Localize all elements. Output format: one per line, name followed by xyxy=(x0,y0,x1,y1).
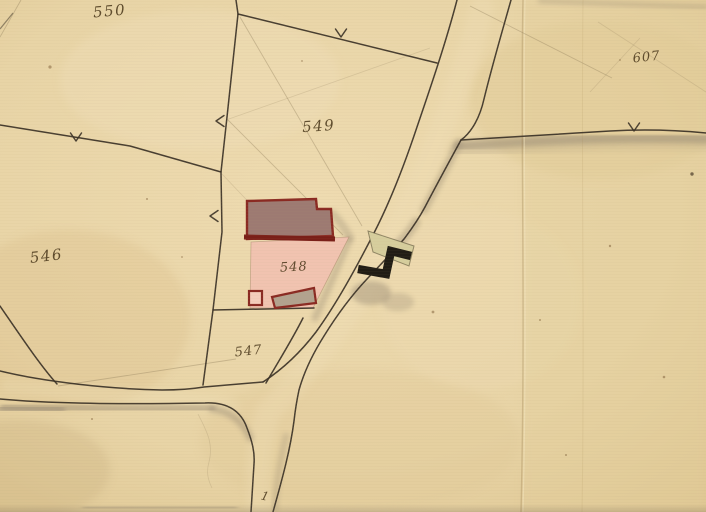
bottom-edge-shadow xyxy=(0,504,706,512)
map-canvas: 550 549 546 548 547 607 1 xyxy=(0,0,706,512)
parcel-label-547: 547 xyxy=(234,343,263,361)
parcel-label-607: 607 xyxy=(632,49,661,67)
parcel-label-548: 548 xyxy=(280,259,309,275)
laid-paper-texture xyxy=(0,0,706,512)
parcel-label-550: 550 xyxy=(92,1,127,22)
parcel-label-549: 549 xyxy=(301,116,335,136)
cadastral-map: 550 549 546 548 547 607 1 xyxy=(0,0,706,512)
